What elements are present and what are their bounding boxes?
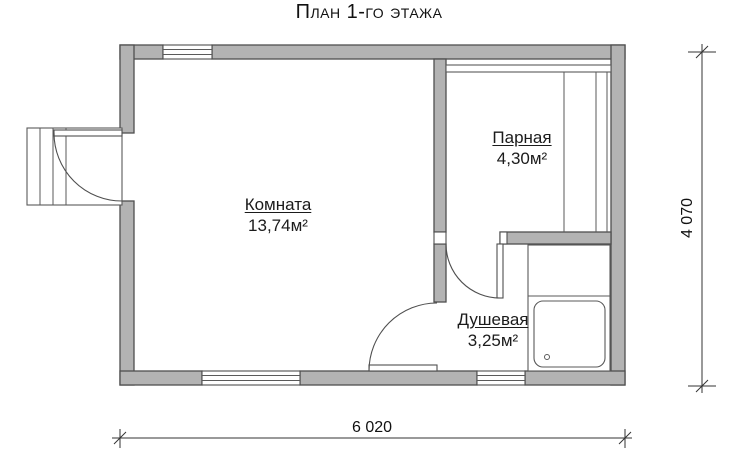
wall-bottom-segment-2 (300, 371, 477, 385)
wall-lining-band (446, 65, 611, 72)
partition-vertical-middle (434, 244, 446, 302)
room-name: Комната (178, 194, 378, 215)
shower-stall (528, 245, 610, 371)
room-label-dushevaya: Душевая 3,25м² (393, 309, 593, 351)
room-area: 4,30м² (422, 148, 622, 169)
porch-steps (27, 128, 122, 205)
wall-bottom-segment-1 (120, 371, 202, 385)
room-area: 13,74м² (178, 215, 378, 236)
window-top (163, 45, 212, 59)
door-leaf (497, 244, 503, 298)
room-name: Парная (422, 127, 622, 148)
wall-top-right-segment (212, 45, 625, 59)
door-swing-arc (446, 244, 500, 298)
partition-horizontal (500, 232, 611, 244)
door-leaf (369, 365, 437, 371)
wall-left-lower-segment (120, 201, 134, 385)
room-label-parnaya: Парная 4,30м² (422, 127, 622, 169)
door-jamb-block (434, 232, 446, 244)
dimension-width-label: 6 020 (272, 419, 472, 437)
dimension-height-label: 4 070 (679, 168, 699, 268)
room-area: 3,25м² (393, 330, 593, 351)
floor-plan: План 1-го этажа (0, 0, 738, 450)
wall-bottom-segment-3 (525, 371, 625, 385)
window-bottom-shower (477, 371, 525, 385)
door-leaf (54, 130, 122, 136)
room-label-komnata: Комната 13,74м² (178, 194, 378, 236)
porch-outline (27, 128, 122, 205)
window-bottom-room (202, 371, 300, 385)
shower-to-steam-door (446, 244, 503, 298)
room-name: Душевая (393, 309, 593, 330)
wall-left-upper-segment (120, 45, 134, 133)
wall-right (611, 45, 625, 385)
door-jamb-cap (500, 232, 507, 244)
